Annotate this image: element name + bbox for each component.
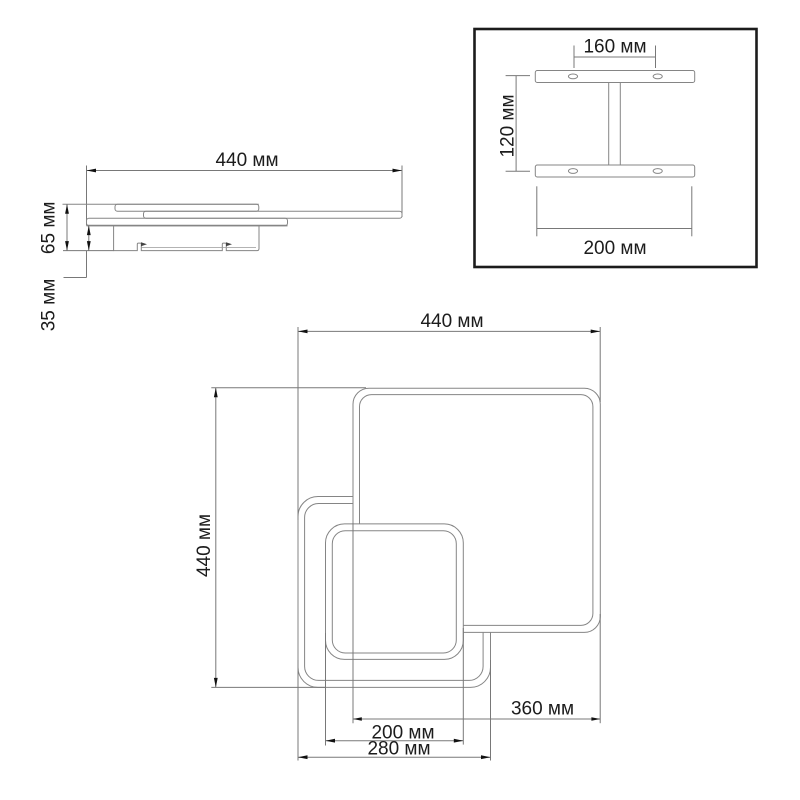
svg-text:360 мм: 360 мм bbox=[511, 699, 574, 720]
svg-text:440 мм: 440 мм bbox=[420, 311, 483, 332]
svg-text:65 мм: 65 мм bbox=[39, 202, 60, 255]
svg-text:200 мм: 200 мм bbox=[583, 238, 646, 259]
svg-text:440 мм: 440 мм bbox=[215, 150, 278, 171]
svg-text:120 мм: 120 мм bbox=[498, 94, 519, 157]
svg-text:280 мм: 280 мм bbox=[367, 739, 430, 760]
svg-text:35 мм: 35 мм bbox=[39, 279, 60, 332]
svg-text:440 мм: 440 мм bbox=[194, 514, 215, 577]
svg-text:160 мм: 160 мм bbox=[583, 37, 646, 58]
